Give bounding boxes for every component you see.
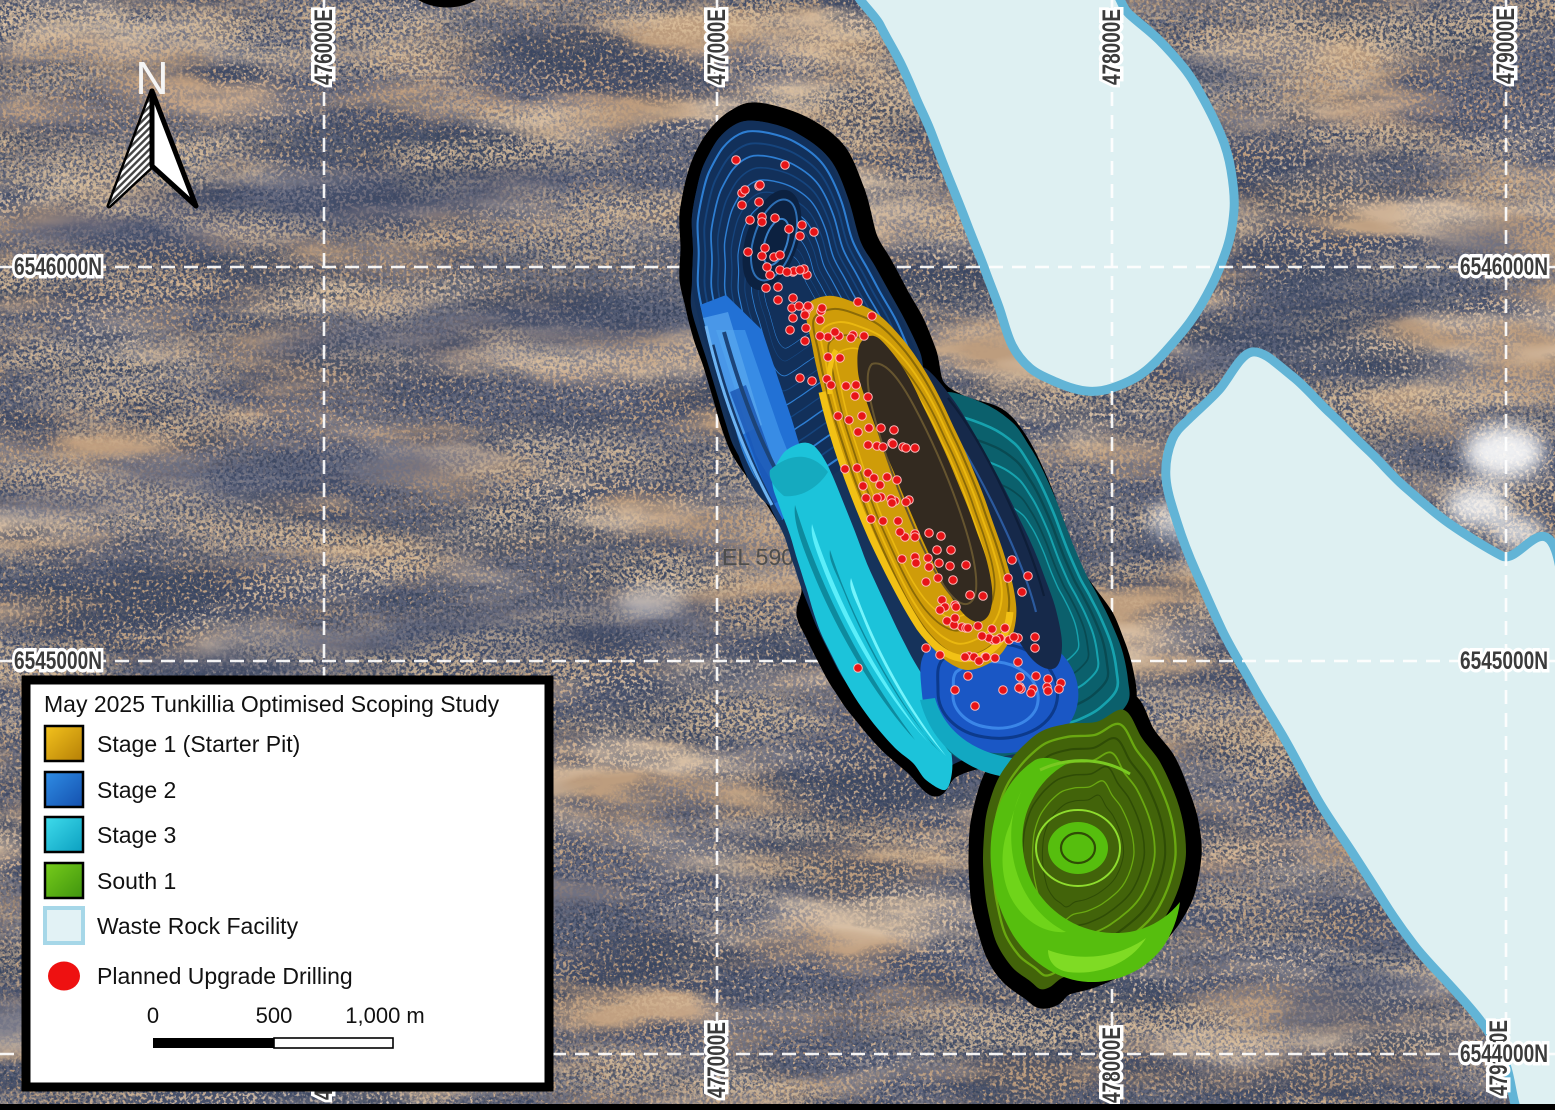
svg-text:0: 0 — [147, 1003, 159, 1028]
svg-text:477000E: 477000E — [703, 1022, 731, 1098]
svg-text:6546000N: 6546000N — [14, 253, 102, 281]
svg-text:Stage 3: Stage 3 — [97, 822, 176, 848]
svg-text:476000E: 476000E — [310, 9, 338, 85]
svg-text:6545000N: 6545000N — [1460, 647, 1548, 675]
svg-text:Stage 1 (Starter Pit): Stage 1 (Starter Pit) — [97, 731, 300, 757]
svg-text:6545000N: 6545000N — [14, 647, 102, 675]
svg-text:South 1: South 1 — [97, 868, 176, 894]
svg-text:May 2025 Tunkillia Optimised S: May 2025 Tunkillia Optimised Scoping Stu… — [44, 691, 500, 717]
svg-text:477000E: 477000E — [703, 9, 731, 85]
svg-text:478000E: 478000E — [1098, 9, 1126, 85]
svg-text:Planned Upgrade Drilling: Planned Upgrade Drilling — [97, 963, 353, 989]
svg-text:478000E: 478000E — [1098, 1027, 1126, 1103]
svg-text:Waste Rock Facility: Waste Rock Facility — [97, 913, 299, 939]
svg-text:1,000 m: 1,000 m — [345, 1003, 425, 1028]
svg-text:6544000N: 6544000N — [1460, 1040, 1548, 1068]
svg-text:Stage 2: Stage 2 — [97, 777, 176, 803]
svg-text:500: 500 — [256, 1003, 293, 1028]
svg-text:EL 590: EL 590 — [722, 544, 794, 570]
svg-text:479000E: 479000E — [1492, 8, 1520, 84]
svg-text:6546000N: 6546000N — [1460, 253, 1548, 281]
